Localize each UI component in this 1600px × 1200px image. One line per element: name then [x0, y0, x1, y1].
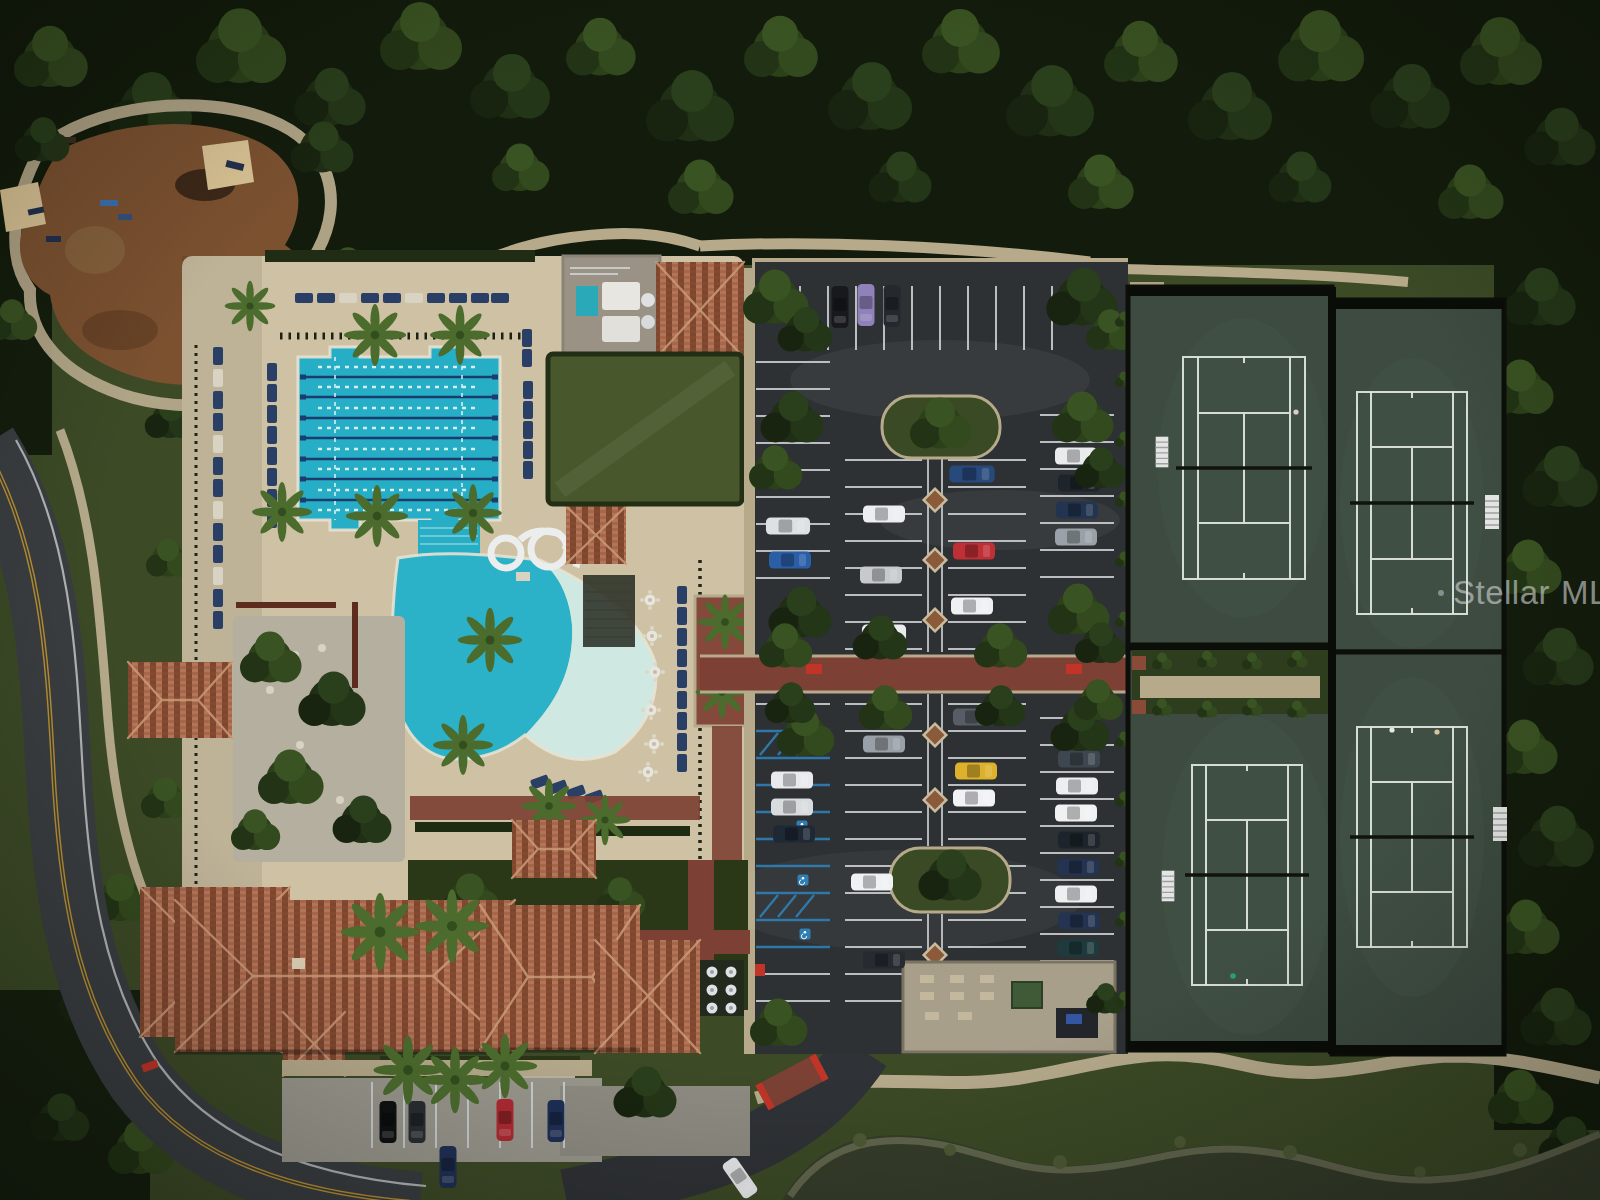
- aerial-scene: [0, 0, 1600, 1200]
- photo-vignette: [0, 0, 1600, 1200]
- aerial-photo: Stellar MLS: [0, 0, 1600, 1200]
